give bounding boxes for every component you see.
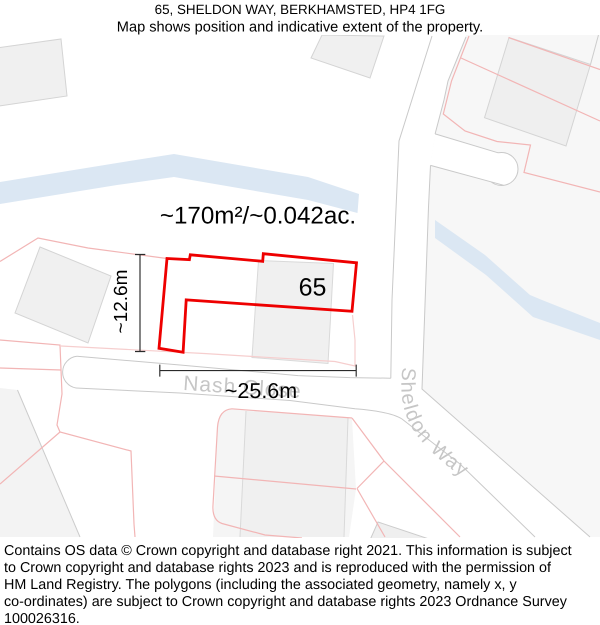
- svg-text:Map shows position and indicat: Map shows position and indicative extent…: [117, 20, 483, 36]
- svg-text:Contains OS data © Crown copyr: Contains OS data © Crown copyright and d…: [4, 543, 572, 559]
- svg-text:HM Land Registry. The polygons: HM Land Registry. The polygons (includin…: [4, 577, 517, 593]
- svg-text:100026316.: 100026316.: [4, 611, 80, 625]
- svg-text:~25.6m: ~25.6m: [225, 379, 297, 403]
- svg-text:to Crown copyright and databas: to Crown copyright and database rights 2…: [4, 560, 551, 576]
- svg-text:~12.6m: ~12.6m: [111, 270, 132, 334]
- svg-text:co-ordinates) are subject to C: co-ordinates) are subject to Crown copyr…: [4, 594, 568, 610]
- svg-text:65: 65: [299, 273, 327, 301]
- svg-text:~170m²/~0.042ac.: ~170m²/~0.042ac.: [160, 203, 356, 230]
- svg-text:65, SHELDON WAY, BERKHAMSTED,: 65, SHELDON WAY, BERKHAMSTED, HP4 1FG: [155, 2, 446, 17]
